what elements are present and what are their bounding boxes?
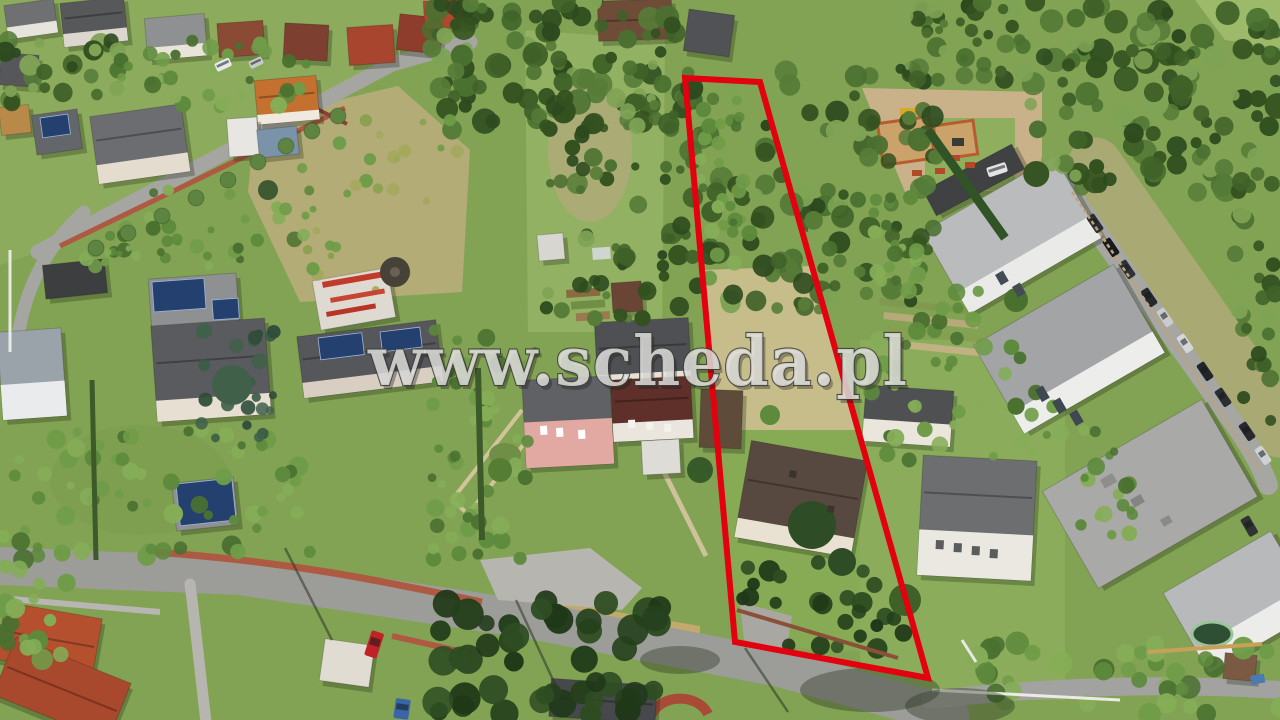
- tree: [594, 19, 608, 33]
- tree: [912, 228, 929, 245]
- tree: [771, 302, 783, 314]
- tree: [1015, 38, 1030, 53]
- tree: [313, 227, 320, 234]
- tree: [618, 30, 637, 49]
- tree: [1024, 98, 1036, 110]
- tree: [275, 467, 291, 483]
- tree: [529, 10, 543, 24]
- building-detail: [540, 426, 547, 435]
- building-detail: [972, 546, 980, 555]
- tree: [237, 441, 245, 449]
- tree: [664, 16, 681, 33]
- tree: [38, 467, 53, 482]
- tree: [629, 117, 645, 133]
- tree: [659, 271, 670, 282]
- tree: [512, 434, 521, 443]
- tree: [704, 223, 719, 238]
- tree: [1111, 103, 1134, 126]
- tree: [1233, 39, 1254, 60]
- tree: [503, 82, 524, 103]
- tree: [1051, 424, 1069, 442]
- tree: [1202, 45, 1227, 70]
- tree: [426, 499, 444, 517]
- tree: [989, 452, 998, 461]
- tree: [84, 69, 99, 84]
- brick-stack: [935, 168, 945, 174]
- tree: [472, 549, 483, 560]
- tree: [162, 235, 174, 247]
- tree: [736, 592, 749, 605]
- tree: [831, 205, 854, 228]
- tree: [771, 253, 787, 269]
- tree: [715, 119, 726, 130]
- tree: [422, 687, 453, 718]
- tree: [1126, 44, 1139, 57]
- tree: [618, 248, 636, 266]
- tree: [1122, 526, 1138, 542]
- tree: [605, 52, 617, 64]
- tree: [1227, 246, 1244, 263]
- tree: [785, 259, 799, 273]
- tree: [510, 69, 526, 85]
- tree: [447, 62, 464, 79]
- tree: [550, 51, 567, 68]
- tree: [1251, 110, 1263, 122]
- tree: [747, 578, 760, 591]
- building: [917, 455, 1041, 586]
- tree: [723, 285, 743, 305]
- solar-panel-array: [40, 114, 71, 138]
- tree: [1261, 370, 1279, 388]
- tree: [253, 37, 267, 51]
- tree: [668, 245, 688, 265]
- tree: [731, 121, 742, 132]
- tree: [430, 620, 451, 641]
- tree: [590, 167, 603, 180]
- tree: [741, 561, 755, 575]
- tree: [196, 325, 210, 339]
- tree: [202, 89, 215, 102]
- tree: [1216, 1, 1240, 25]
- tree: [1214, 117, 1233, 136]
- tree: [592, 78, 608, 94]
- tree: [965, 24, 978, 37]
- tree: [902, 111, 916, 125]
- tree: [163, 185, 174, 196]
- tree: [973, 397, 982, 406]
- tree: [29, 594, 39, 604]
- tree: [1264, 176, 1280, 192]
- tree: [242, 421, 251, 430]
- tree: [725, 201, 735, 211]
- tree: [1241, 323, 1252, 334]
- tree: [746, 291, 767, 312]
- tree: [576, 185, 585, 194]
- tree: [696, 174, 706, 184]
- tree: [1076, 82, 1100, 106]
- tree: [131, 251, 141, 261]
- tree: [931, 73, 945, 87]
- tree: [729, 218, 737, 226]
- tree: [428, 646, 458, 676]
- building-roof: [347, 24, 396, 65]
- tree: [655, 46, 667, 58]
- tree: [838, 189, 848, 199]
- tree: [707, 93, 719, 105]
- tree: [793, 273, 814, 294]
- tree: [584, 148, 603, 167]
- tree: [895, 624, 913, 642]
- tree: [472, 108, 497, 133]
- tree: [10, 560, 28, 578]
- tree: [304, 185, 314, 195]
- tree: [472, 80, 486, 94]
- tree: [32, 491, 45, 504]
- tree: [1193, 105, 1209, 121]
- tree: [302, 59, 311, 68]
- tree: [926, 1, 944, 19]
- tree: [325, 240, 335, 250]
- tree: [1232, 172, 1251, 191]
- tree: [446, 0, 461, 15]
- building-detail: [578, 430, 585, 439]
- tree: [1253, 240, 1264, 251]
- tree: [343, 190, 351, 198]
- tree: [770, 597, 782, 609]
- tree: [826, 120, 848, 142]
- tree: [710, 248, 725, 263]
- tree: [104, 249, 112, 257]
- tree: [881, 220, 892, 231]
- tree: [749, 188, 763, 202]
- tree: [812, 594, 832, 614]
- tree: [1103, 172, 1117, 186]
- tree: [526, 64, 542, 80]
- tree: [837, 614, 853, 630]
- tree: [423, 198, 430, 205]
- tree: [301, 212, 309, 220]
- tree: [881, 153, 897, 169]
- tree: [376, 131, 384, 139]
- tree: [175, 239, 181, 245]
- tree: [732, 95, 742, 105]
- tree: [1015, 64, 1033, 82]
- tree: [373, 183, 383, 193]
- tree: [444, 114, 456, 126]
- tree: [900, 282, 917, 299]
- tree: [26, 639, 42, 655]
- tree: [903, 190, 918, 205]
- tree: [622, 60, 637, 75]
- tree: [1146, 126, 1161, 141]
- tree: [303, 245, 312, 254]
- tree: [241, 400, 256, 415]
- tree: [15, 455, 24, 464]
- tree: [47, 430, 66, 449]
- tree: [219, 427, 235, 443]
- tree: [521, 435, 533, 447]
- tree: [266, 406, 274, 414]
- tree: [428, 543, 439, 554]
- tree: [1087, 458, 1105, 476]
- tree: [211, 434, 220, 443]
- tree: [1090, 426, 1101, 437]
- tree: [1259, 311, 1274, 326]
- tree: [833, 254, 846, 267]
- tree: [237, 91, 246, 100]
- tree: [811, 636, 830, 655]
- tree: [282, 54, 296, 68]
- tree: [536, 686, 555, 705]
- tree: [430, 77, 451, 98]
- tree: [422, 39, 441, 58]
- tree: [576, 125, 589, 138]
- tree: [1259, 117, 1279, 137]
- tree: [557, 90, 574, 107]
- tree: [859, 148, 878, 167]
- feature-tree: [212, 365, 252, 405]
- tree: [694, 153, 706, 165]
- tree: [34, 38, 44, 48]
- tree: [143, 46, 158, 61]
- tree: [364, 153, 376, 165]
- tree: [33, 578, 45, 590]
- tree: [629, 196, 647, 214]
- tree: [1231, 302, 1248, 319]
- tree: [850, 192, 866, 208]
- tree: [1065, 36, 1079, 50]
- building-detail: [556, 428, 563, 437]
- tree: [39, 82, 50, 93]
- tree: [539, 119, 553, 133]
- feature-tree: [760, 405, 780, 425]
- tree: [204, 510, 213, 519]
- tree: [952, 302, 963, 313]
- tree: [149, 188, 158, 197]
- tree: [1250, 90, 1267, 107]
- tree: [1078, 425, 1089, 436]
- tree: [246, 76, 254, 84]
- tree: [1153, 42, 1171, 60]
- tree: [736, 174, 751, 189]
- building-detail: [628, 420, 635, 428]
- tree: [1115, 68, 1138, 91]
- tree: [1110, 447, 1118, 455]
- tree: [251, 234, 264, 247]
- excavator: [952, 138, 964, 146]
- brick-stack: [912, 170, 922, 176]
- tree: [434, 444, 443, 453]
- tree: [501, 10, 521, 30]
- tree: [949, 420, 959, 430]
- tree: [67, 439, 85, 457]
- tree: [1233, 205, 1252, 224]
- tree: [711, 136, 725, 150]
- tree: [572, 277, 588, 293]
- tree: [73, 542, 91, 560]
- tree: [956, 67, 974, 85]
- tree: [820, 183, 836, 199]
- tree: [554, 302, 570, 318]
- tree: [916, 175, 936, 195]
- tree: [1062, 58, 1075, 71]
- tree: [734, 112, 745, 123]
- tree: [1040, 9, 1064, 33]
- tree: [282, 484, 293, 495]
- tree: [917, 422, 933, 438]
- trampoline: [1192, 622, 1232, 646]
- tree: [127, 501, 138, 512]
- tree: [1262, 327, 1275, 340]
- tree: [939, 19, 948, 28]
- tree: [887, 429, 904, 446]
- building-detail: [646, 422, 653, 430]
- tree: [950, 332, 963, 345]
- street-tree: [330, 108, 346, 124]
- tree: [254, 432, 264, 442]
- tree: [186, 35, 198, 47]
- tree: [135, 468, 147, 480]
- tree: [451, 145, 464, 158]
- building: [683, 9, 739, 63]
- street-tree: [220, 172, 236, 188]
- tree: [203, 251, 212, 260]
- tree: [1168, 75, 1193, 100]
- tree: [277, 493, 286, 502]
- tree: [620, 103, 636, 119]
- tree: [657, 250, 667, 260]
- gazebo-roof-top: [390, 267, 400, 277]
- tree: [518, 470, 533, 485]
- tree: [1166, 663, 1185, 682]
- tree: [1161, 7, 1173, 19]
- tree: [975, 338, 993, 356]
- tree: [593, 275, 609, 291]
- tree: [1024, 645, 1040, 661]
- tree: [1247, 148, 1265, 166]
- tree: [540, 301, 553, 314]
- tree: [712, 200, 725, 213]
- tree: [658, 113, 679, 134]
- building: [0, 104, 36, 140]
- street-tree: [88, 240, 104, 256]
- tree: [523, 42, 548, 67]
- tree: [163, 474, 180, 491]
- tree: [190, 239, 205, 254]
- tree: [1137, 12, 1156, 31]
- tree: [922, 28, 932, 38]
- tree: [449, 492, 465, 508]
- tree: [660, 161, 672, 173]
- feature-tree: [828, 548, 856, 576]
- tree: [885, 192, 896, 203]
- tree: [11, 532, 30, 551]
- tree: [459, 100, 472, 113]
- tree: [506, 31, 524, 49]
- tree: [57, 574, 75, 592]
- feature-tree: [488, 458, 512, 482]
- tree: [866, 577, 882, 593]
- tree: [1265, 415, 1276, 426]
- tree: [631, 162, 639, 170]
- tree: [387, 183, 400, 196]
- tree: [714, 158, 724, 168]
- tree: [5, 85, 17, 97]
- tree: [870, 619, 883, 632]
- tree: [155, 52, 170, 67]
- tree: [224, 189, 235, 200]
- tree: [572, 7, 592, 27]
- tree: [1036, 48, 1053, 65]
- tree: [44, 614, 56, 626]
- greenhouse: [592, 247, 611, 260]
- tree: [291, 506, 304, 519]
- building-roof: [683, 9, 734, 57]
- tree: [1188, 183, 1207, 202]
- tree: [269, 391, 277, 399]
- tree: [1028, 448, 1037, 457]
- tree: [170, 92, 181, 103]
- tree: [578, 230, 595, 247]
- tree: [1209, 133, 1221, 145]
- tree: [115, 490, 123, 498]
- tree: [109, 81, 124, 96]
- tree: [1198, 651, 1214, 667]
- tree: [773, 570, 787, 584]
- tree: [567, 155, 579, 167]
- tree: [430, 518, 445, 533]
- tree: [360, 114, 372, 126]
- tree: [476, 634, 500, 658]
- tree: [350, 179, 362, 191]
- tree: [649, 100, 659, 110]
- tree: [91, 89, 103, 101]
- tree: [586, 672, 606, 692]
- tree: [887, 246, 903, 262]
- tree: [699, 183, 708, 192]
- tree: [1107, 530, 1117, 540]
- tree: [851, 126, 867, 142]
- tree: [908, 70, 926, 88]
- tree: [594, 591, 618, 615]
- solar-panel-array: [212, 298, 239, 320]
- tree: [492, 517, 510, 535]
- building-roof: [641, 439, 681, 475]
- tree: [1024, 408, 1038, 422]
- tree: [909, 247, 922, 260]
- tree: [1215, 159, 1233, 177]
- tree: [1144, 82, 1164, 102]
- tree: [1104, 10, 1128, 34]
- tree: [235, 42, 243, 50]
- building-detail: [990, 549, 998, 558]
- tree: [9, 470, 21, 482]
- tree: [53, 647, 69, 663]
- tree: [1080, 474, 1088, 482]
- street-tree: [304, 123, 320, 139]
- car: [393, 698, 411, 720]
- tree: [399, 144, 412, 157]
- tree: [870, 194, 882, 206]
- tree: [995, 66, 1007, 78]
- tree: [202, 39, 219, 56]
- tree: [1140, 156, 1164, 180]
- tree: [1007, 398, 1024, 415]
- tree: [868, 225, 882, 239]
- tree: [651, 28, 661, 38]
- tree: [657, 260, 669, 272]
- tree: [452, 16, 476, 40]
